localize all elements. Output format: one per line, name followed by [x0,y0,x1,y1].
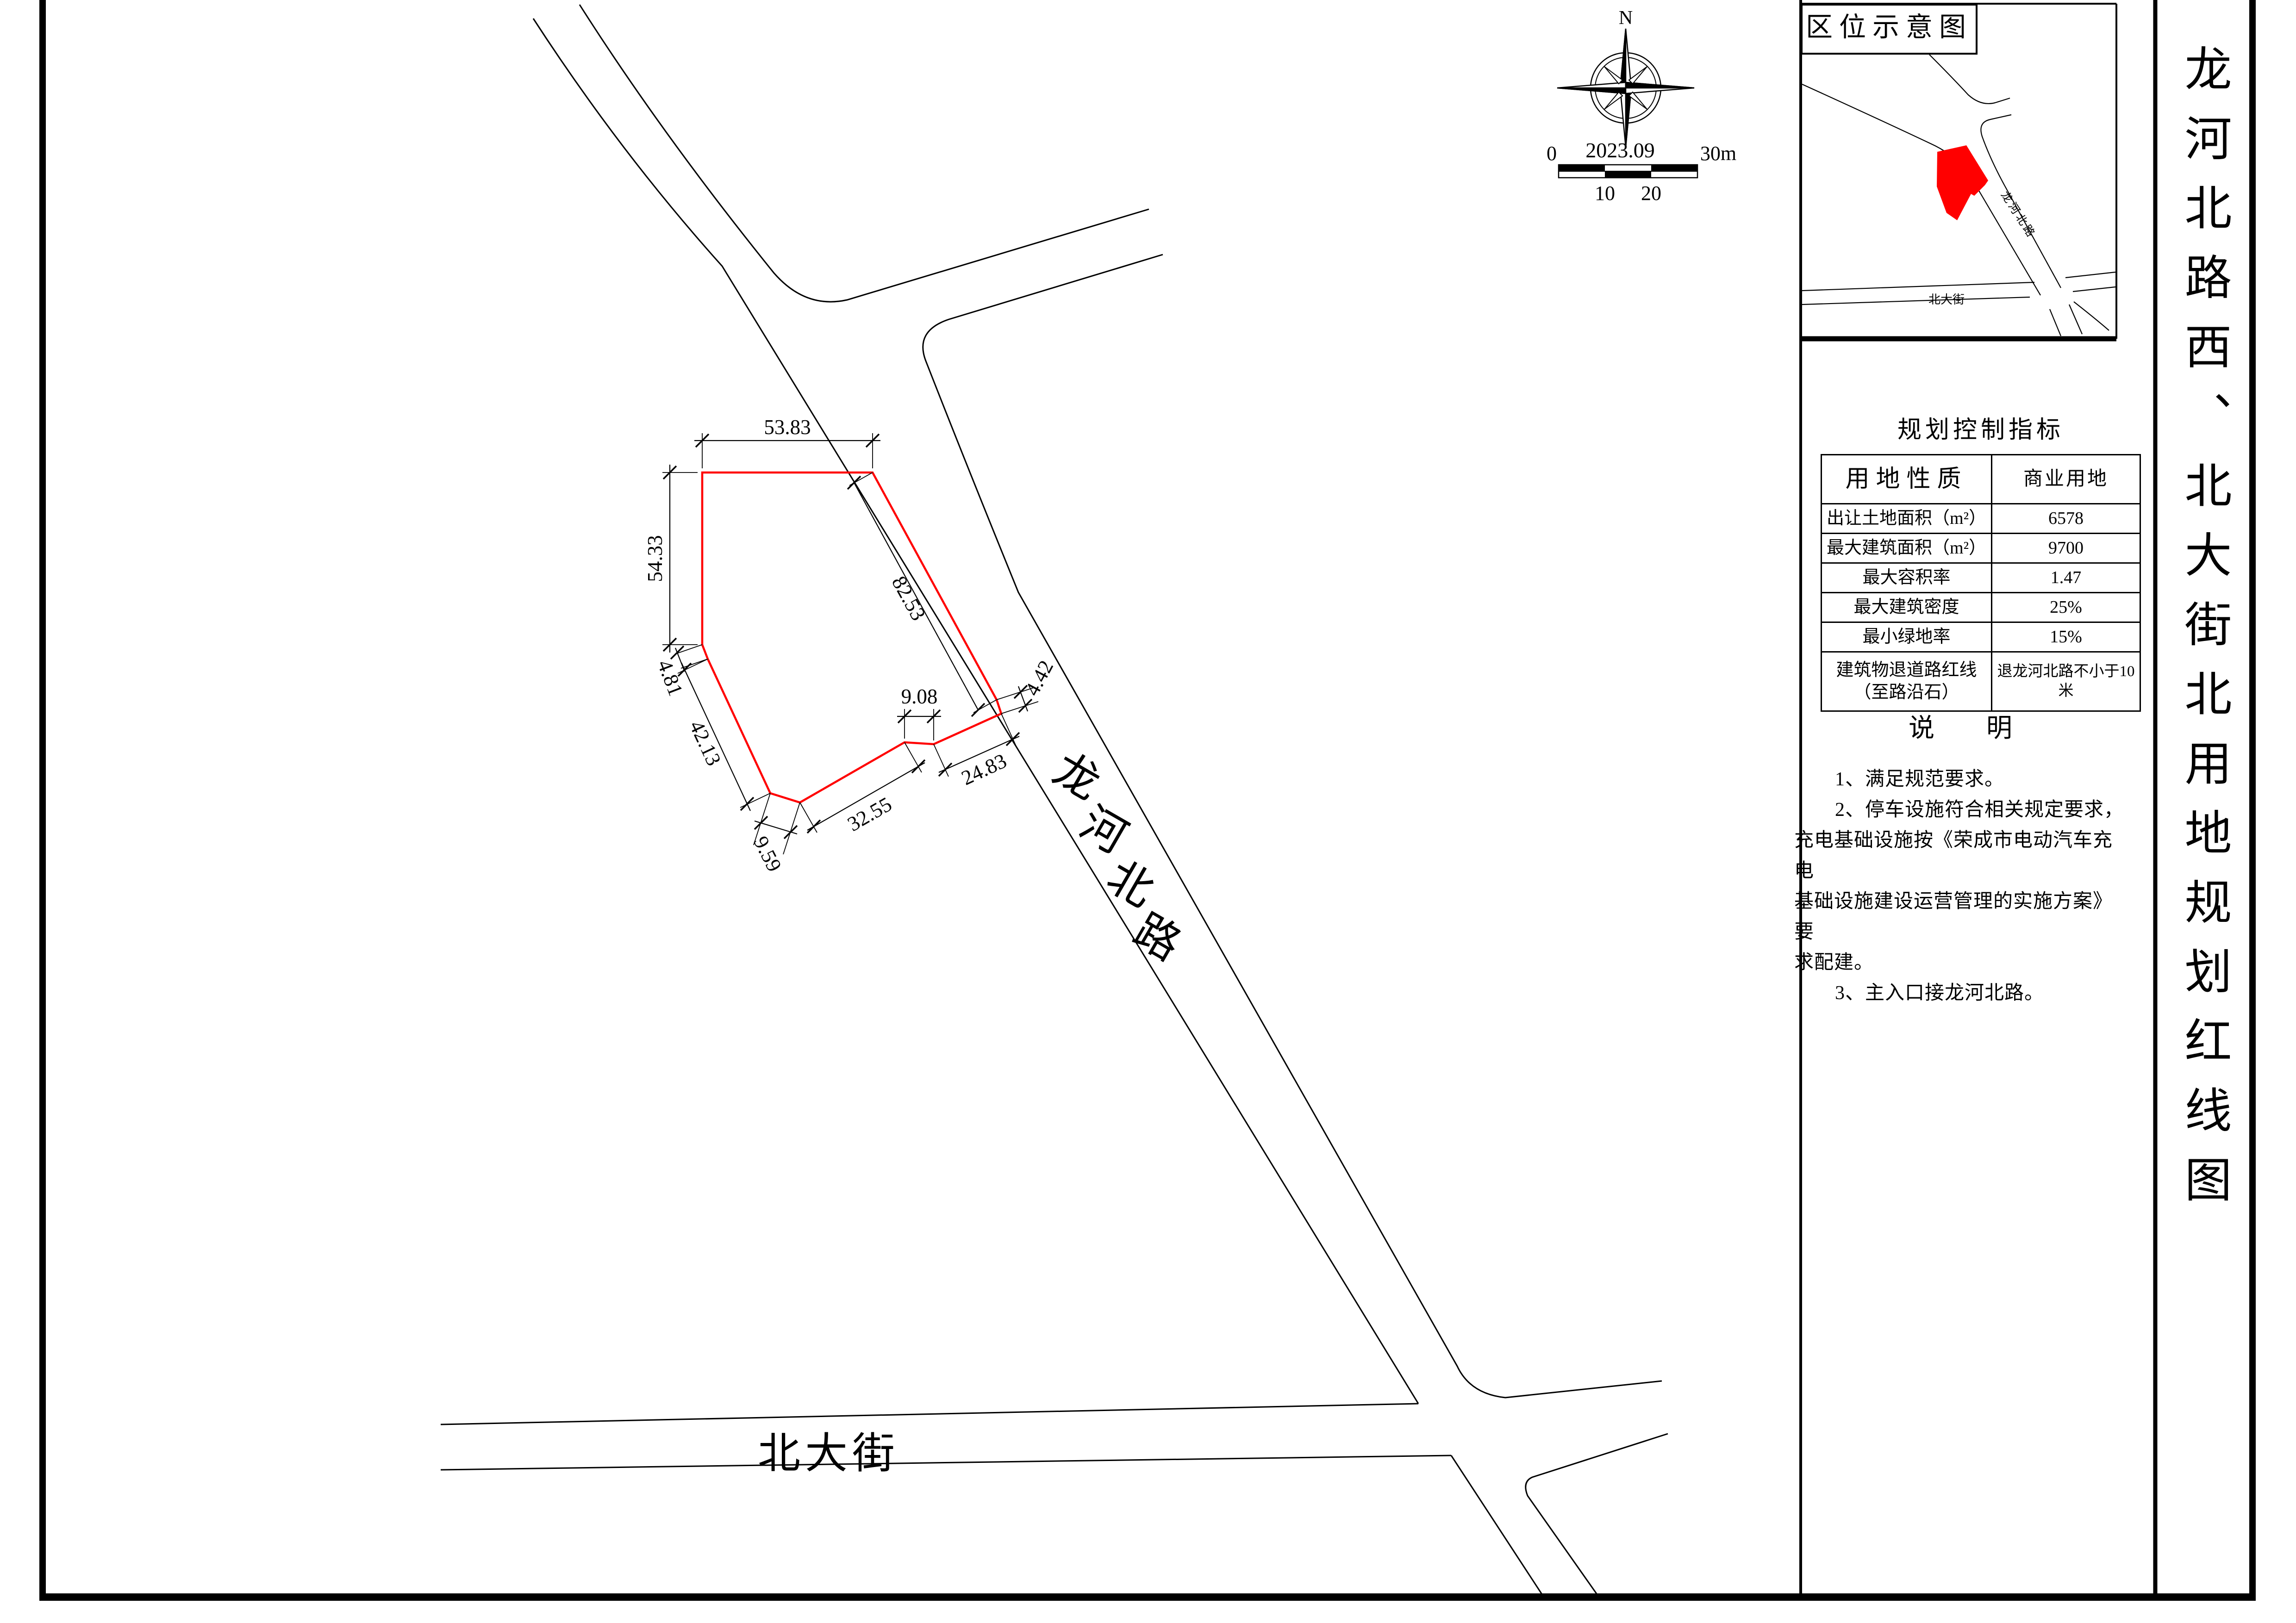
street-name-beidajie: 北大街 [758,1430,899,1477]
parcel-outline [702,473,1001,802]
note-line: 基础设施建设运营管理的实施方案》要 [1794,886,2127,947]
dim-left: 54.33 [643,535,667,582]
notes-block: 说 明 1、满足规范要求。 2、停车设施符合相关规定要求， 充电基础设施按《荣成… [1794,707,2127,1008]
compass-rose [1557,29,1694,147]
row-label: 最大建筑面积（m²） [1822,534,1992,563]
dim-908: 9.08 [901,685,938,708]
scale-date: 2023.09 [1585,138,1655,162]
scale-20: 20 [1641,182,1661,205]
row-value: 15% [1992,622,2140,652]
dim-4213: 42.13 [685,717,726,769]
row-value: 6578 [1992,504,2140,534]
road-edge-east-ne-north [580,5,1149,302]
note-line: 求配建。 [1794,947,2127,978]
row-value: 1.47 [1992,563,2140,593]
dim-442: 4.42 [1020,656,1058,699]
row-label: 用地性质 [1822,455,1992,504]
location-inset: 龙河北路 北大街 区位示意图 [1801,4,2116,339]
row-value: 商业用地 [1992,455,2140,504]
planning-indicators-table: 用地性质 商业用地 出让土地面积（m²） 6578 最大建筑面积（m²） 970… [1821,454,2141,712]
inset-title: 区位示意图 [1806,12,1972,42]
inset-street-label: 北大街 [1928,293,1965,306]
sheet-title: 龙河北路西、北大街北用地规划红线图 [2158,44,2249,1266]
scale-10: 10 [1595,182,1615,205]
row-label: 最小绿地率 [1822,622,1992,652]
notes-title: 说 明 [1794,707,2127,745]
dim-8253: 82.53 [887,572,930,624]
dimension-extension-lines [662,433,1038,854]
scale-end: 30m [1700,142,1736,165]
street-edge-lower [441,1455,1451,1470]
table-row: 用地性质 商业用地 [1822,455,2140,504]
dim-481: 4.81 [653,657,688,699]
row-label: 最大建筑密度 [1822,593,1992,622]
drawing-sheet: 53.83 54.33 82.53 9.08 32.55 24.83 42.13… [0,0,2296,1623]
note-line: 充电基础设施按《荣成市电动汽车充电 [1794,825,2127,886]
street-edge-lower-right [1526,1434,1668,1596]
row-value: 25% [1992,593,2140,622]
table-row: 最大建筑密度 25% [1822,593,2140,622]
scale-zero: 0 [1547,142,1557,165]
scale-bar: 0 2023.09 30m 10 20 [1547,138,1736,205]
table-row: 出让土地面积（m²） 6578 [1822,504,2140,534]
note-line: 1、满足规范要求。 [1794,764,2127,795]
dim-959: 9.59 [749,833,786,876]
row-value: 9700 [1992,534,2140,563]
row-label: 建筑物退道路红线（至路沿石） [1822,652,1992,711]
note-line: 3、主入口接龙河北路。 [1794,978,2127,1008]
row-label: 出让土地面积（m²） [1822,504,1992,534]
compass-north-label: N [1619,7,1633,29]
planning-indicators-block: 规划控制指标 用地性质 商业用地 出让土地面积（m²） 6578 最大建筑面积（… [1821,410,2141,712]
table-row: 最大建筑面积（m²） 9700 [1822,534,2140,563]
table-row: 最小绿地率 15% [1822,622,2140,652]
sheet-title-column: 龙河北路西、北大街北用地规划红线图 [2158,44,2249,1266]
road-edge-west-south [1451,1455,1543,1596]
road-name-longhe: 龙 河 北 路 [1045,744,1189,970]
row-label: 最大容积率 [1822,563,1992,593]
row-value: 退龙河北路不小于10米 [1992,652,2140,711]
inset-site-parcel [1937,145,1988,220]
table-row: 建筑物退道路红线（至路沿石） 退龙河北路不小于10米 [1822,652,2140,711]
road-network [441,5,1668,1596]
table-title: 规划控制指标 [1821,410,2141,445]
road-edge-east [923,255,1662,1398]
street-edge-upper [441,1404,1418,1424]
note-line: 2、停车设施符合相关规定要求， [1794,795,2127,825]
dim-3255: 32.55 [843,792,896,836]
table-row: 最大容积率 1.47 [1822,563,2140,593]
dim-2483: 24.83 [958,749,1010,790]
dim-top: 53.83 [764,416,811,439]
